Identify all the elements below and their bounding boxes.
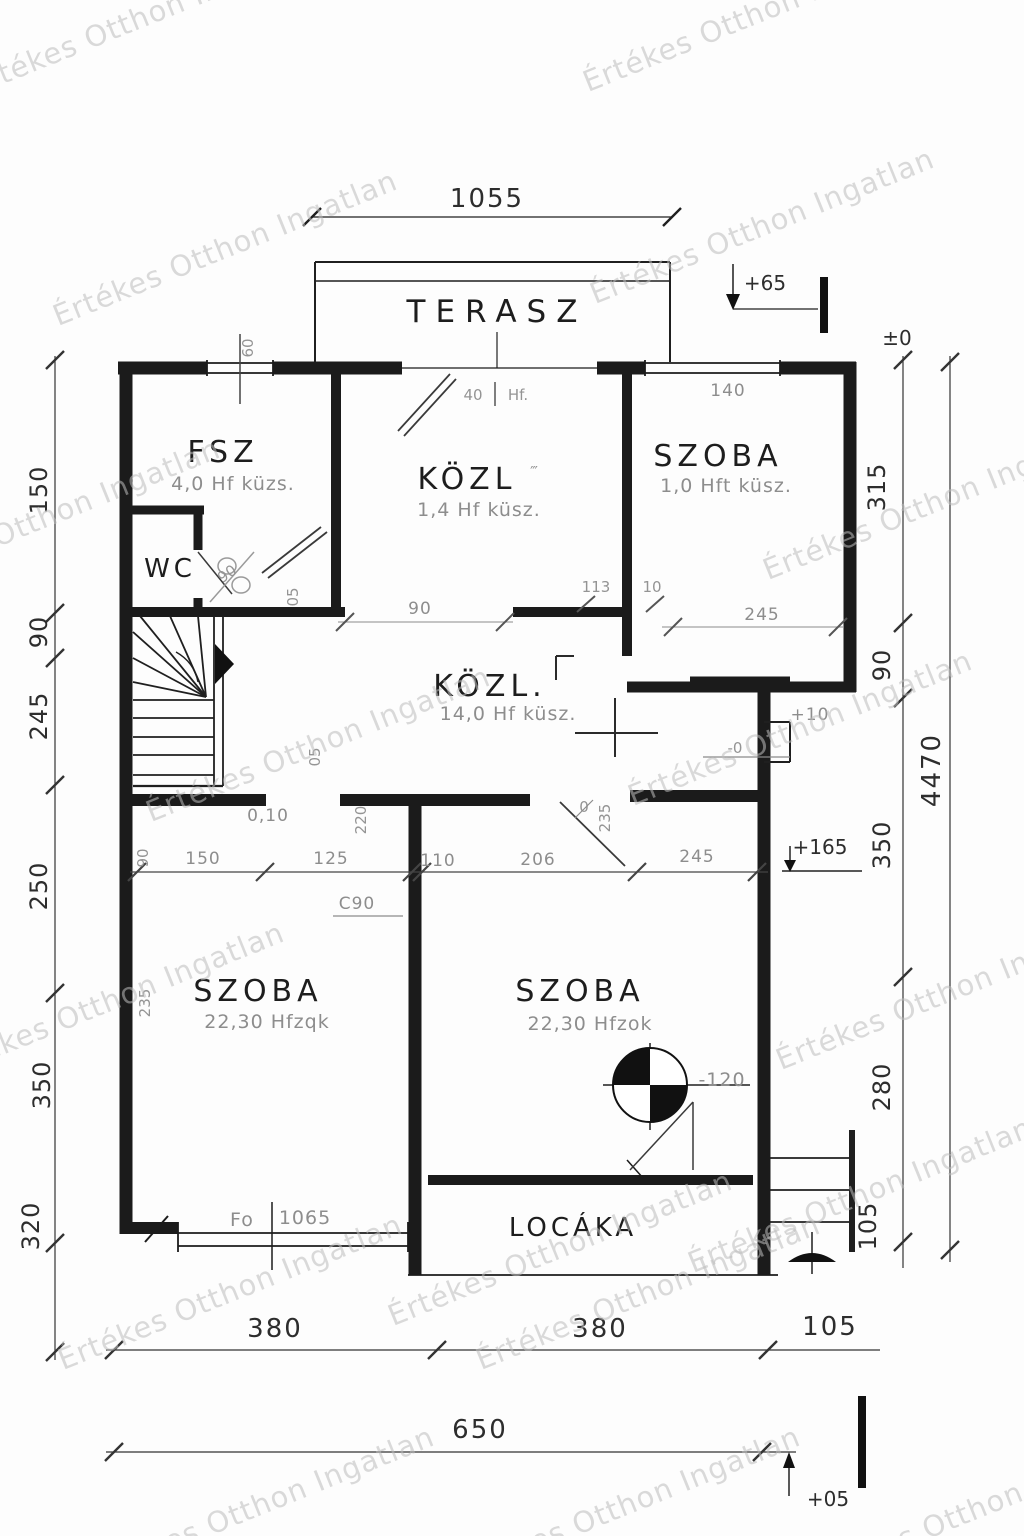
- room-label-hall: KÖZL.: [433, 668, 546, 704]
- floorplan-page: 1055 TERASZ +65: [0, 0, 1024, 1536]
- room-label-locaka: LOCÁKA: [509, 1211, 637, 1243]
- note-220: 220: [352, 806, 370, 835]
- stair-direction-arrow: [215, 644, 234, 684]
- dim-mid-125: 125: [313, 849, 348, 869]
- room-note-kozl: 1,4 Hf küsz.: [417, 499, 541, 521]
- dim-bottom-380b: 380: [572, 1314, 628, 1344]
- dim-bottom-105: 105: [802, 1312, 858, 1342]
- dim-right-105: 105: [854, 1202, 882, 1251]
- dim-bottom-380a: 380: [247, 1314, 303, 1344]
- dim-left-250: 250: [25, 862, 53, 911]
- dim-left-245: 245: [25, 692, 53, 741]
- room-note-fsz: 4,0 Hf küzs.: [171, 473, 295, 495]
- dim-left-320: 320: [17, 1202, 45, 1251]
- dim-mid-110: 110: [420, 851, 455, 871]
- room-note-szoba-ne: 1,0 Hft küsz.: [660, 475, 792, 497]
- dim-left-90: 90: [25, 616, 53, 649]
- dim-total-height-4470: 4470: [917, 733, 947, 807]
- note-door-hf: Hf.: [508, 386, 528, 404]
- room-label-fsz: FSZ: [187, 435, 258, 470]
- note-level-minus0: -0: [728, 739, 743, 757]
- room-label-szoba-sw: SZOBA: [193, 974, 322, 1009]
- terrace-group: [303, 208, 818, 368]
- dim-mid-150: 150: [185, 849, 220, 869]
- dim-mid-206: 206: [520, 850, 555, 870]
- dim-open-90: 90: [408, 599, 432, 619]
- room-note-szoba-sw: 22,30 Hfzqk: [204, 1011, 329, 1033]
- dim-10: 10: [642, 578, 661, 596]
- dim-right-280: 280: [868, 1063, 896, 1112]
- level-65-arrow: [726, 294, 740, 310]
- dim-mid-90: 90: [134, 848, 152, 867]
- room-label-terasz: TERASZ: [406, 294, 588, 330]
- right-dim-chains: [894, 351, 959, 1268]
- room-label-wc: WC: [144, 554, 196, 584]
- note-zero-mid: 0: [579, 798, 589, 816]
- note-235-sw: 235: [136, 989, 154, 1018]
- level-65-label: +65: [744, 271, 786, 295]
- note-sill-010: 0,10: [247, 806, 289, 826]
- dim-113: 113: [582, 578, 611, 596]
- level-05-label: +05: [807, 1487, 849, 1511]
- exterior-steps: [764, 722, 852, 1274]
- dim-right-350: 350: [868, 821, 896, 870]
- exterior-walls: [118, 360, 856, 1275]
- dim-right-90: 90: [868, 649, 896, 682]
- floorplan-drawing: 1055 TERASZ +65: [0, 0, 1024, 1536]
- window-dim-140: 140: [710, 381, 745, 401]
- dim-bottom-650: 650: [452, 1415, 508, 1445]
- room-label-kozl: KÖZL: [418, 461, 517, 497]
- level-165-arrow: [784, 860, 796, 872]
- level-zero-mark: ±0: [882, 326, 911, 350]
- level-165-label: +165: [793, 835, 848, 859]
- dim-mid-245: 245: [679, 847, 714, 867]
- room-note-szoba-se: 22,30 Hfzok: [527, 1013, 652, 1035]
- level-05-bar: [858, 1396, 866, 1488]
- room-label-szoba-ne: SZOBA: [653, 439, 782, 474]
- dim-top-1055: 1055: [450, 184, 524, 214]
- note-235-mid: 235: [596, 804, 614, 833]
- dim-right-315: 315: [863, 463, 891, 512]
- note-05-a: 05: [284, 587, 302, 606]
- dim-245-upper: 245: [744, 605, 779, 625]
- room-label-kozl-marks: ‴: [530, 463, 538, 481]
- mid-dim-row: [128, 846, 862, 881]
- note-05-b: 05: [306, 747, 324, 766]
- window-label-fo: Fo: [230, 1209, 254, 1231]
- level-65-bar: [820, 277, 828, 333]
- dim-left-150: 150: [25, 466, 53, 515]
- dim-left-350: 350: [28, 1061, 56, 1110]
- entrance-arc-symbol: [788, 1253, 836, 1262]
- note-c90: C90: [339, 894, 376, 914]
- note-door-40: 40: [463, 386, 482, 404]
- room-label-szoba-se: SZOBA: [515, 974, 644, 1009]
- level-mark-minus120: -120: [698, 1069, 745, 1091]
- level-05-arrow: [783, 1452, 795, 1468]
- room-note-hall: 14,0 Hf küsz.: [440, 703, 577, 725]
- note-step-plus10: +10: [791, 705, 830, 725]
- note-window-60: 60: [239, 338, 257, 357]
- window-dim-1065: 1065: [279, 1207, 331, 1229]
- staircase: [133, 616, 223, 786]
